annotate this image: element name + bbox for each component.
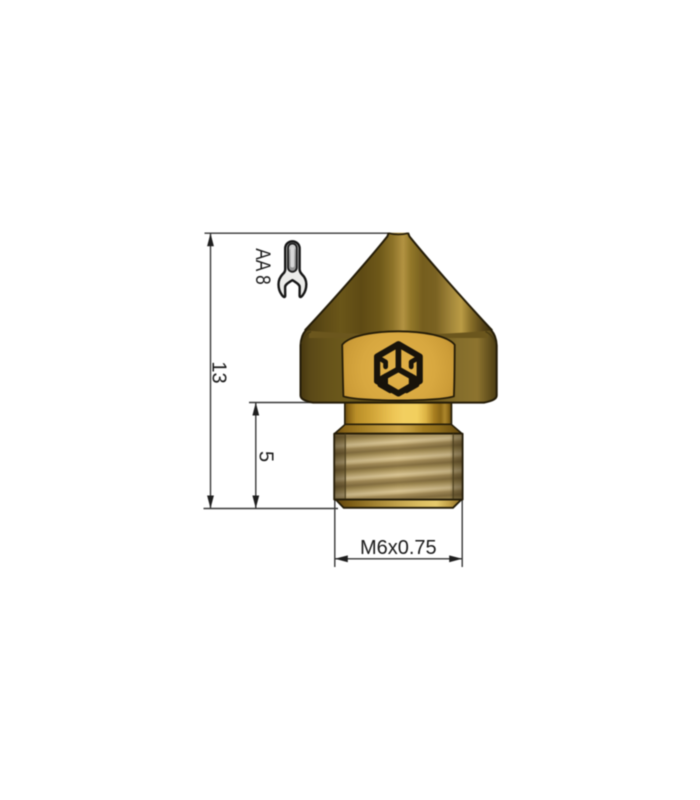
- svg-text:M6x0.75: M6x0.75: [360, 537, 437, 559]
- svg-text:5: 5: [255, 451, 277, 462]
- svg-text:AA 8: AA 8: [251, 248, 275, 285]
- svg-text:13: 13: [208, 361, 230, 383]
